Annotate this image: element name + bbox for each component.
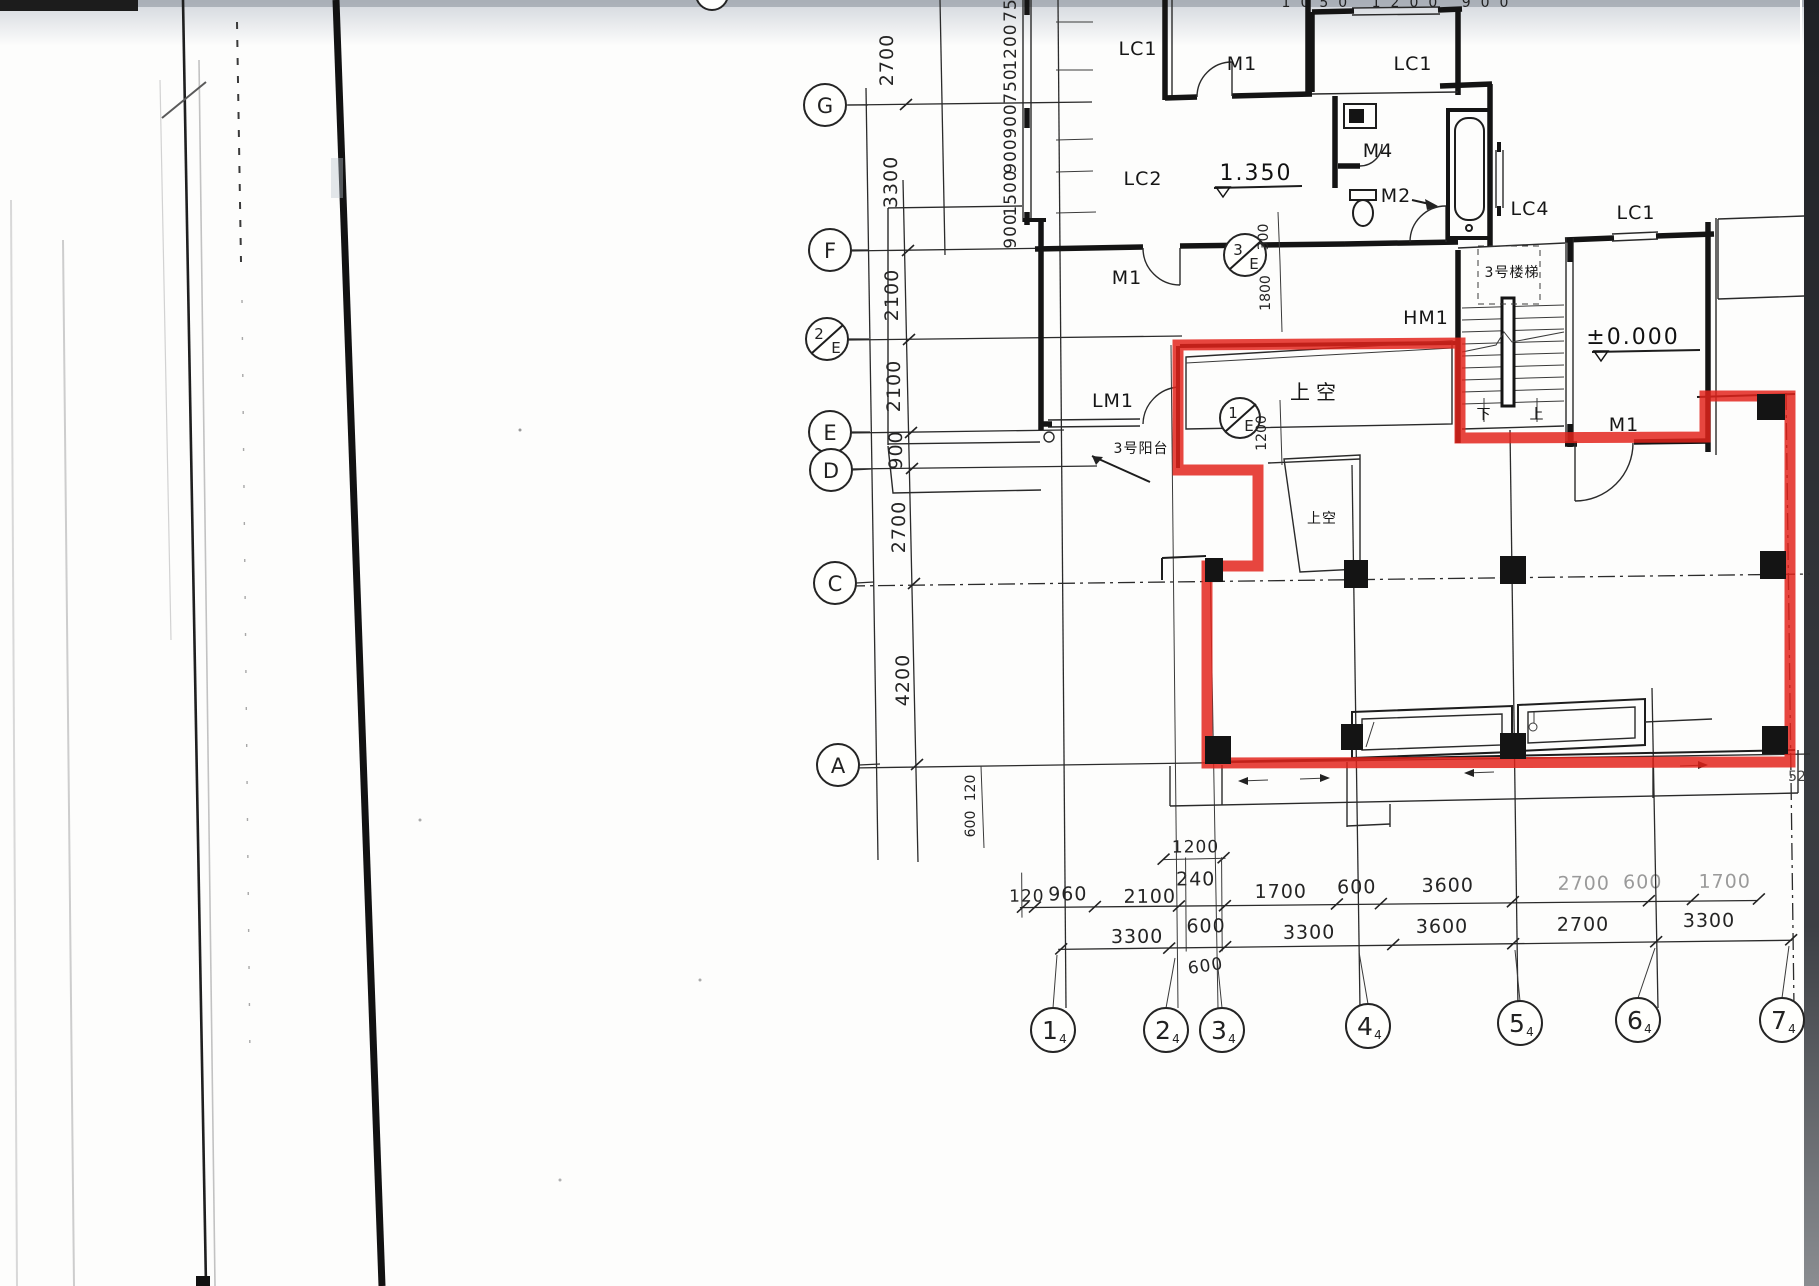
svg-text:A: A — [831, 754, 846, 778]
svg-text:1200: 1200 — [1172, 837, 1219, 857]
axis-bubble-E: E — [809, 411, 870, 453]
svg-text:2100: 2100 — [881, 269, 903, 321]
scanned-floorplan-sheet: G F 2 E E D C — [0, 0, 1819, 1286]
scan-right-band — [1804, 0, 1819, 1286]
svg-text:4: 4 — [1357, 1012, 1373, 1041]
svg-text:120: 120 — [1009, 886, 1045, 906]
svg-text:600: 600 — [1186, 915, 1225, 937]
label-door-m1-top: M1 — [1227, 53, 1257, 75]
axis-bubble-7: 7 4 — [1760, 946, 1804, 1042]
svg-text:2700: 2700 — [1557, 914, 1610, 936]
svg-text:3300: 3300 — [1283, 921, 1336, 943]
stair-rail — [1502, 298, 1514, 406]
svg-text:1200: 1200 — [1001, 23, 1021, 70]
label-balcony-3: 3号阳台 — [1114, 441, 1169, 457]
svg-text:600: 600 — [1623, 871, 1662, 893]
svg-text:2700: 2700 — [1557, 873, 1610, 895]
void-rooms — [1162, 341, 1452, 580]
svg-text:7: 7 — [1771, 1006, 1787, 1035]
svg-text:E: E — [823, 421, 836, 445]
svg-text:1: 1 — [1042, 1016, 1058, 1045]
svg-text:E: E — [831, 339, 840, 357]
right-edge-cut-text: 52 — [1788, 769, 1806, 785]
svg-text:2700: 2700 — [876, 34, 898, 86]
label-door-hm1: HM1 — [1403, 307, 1449, 329]
walls-entry-room — [1565, 218, 1716, 501]
label-stair-up: 上 — [1530, 407, 1545, 423]
left-dimensions: 2700 3300 2100 2100 900 2700 4200 75 120… — [876, 0, 1021, 848]
svg-text:1700: 1700 — [1698, 871, 1751, 893]
label-void-2: 上空 — [1307, 511, 1337, 527]
svg-text:2100: 2100 — [883, 360, 905, 412]
svg-text:3300: 3300 — [1111, 926, 1164, 948]
level-upper: 1.350 — [1214, 161, 1302, 197]
svg-text:3: 3 — [1211, 1016, 1227, 1045]
axis-bubble-D: D — [810, 449, 871, 491]
fold-line-thin — [183, 0, 206, 1286]
columns — [1205, 394, 1788, 764]
axis-bubble-G: G — [804, 84, 868, 126]
svg-text:±0.000: ±0.000 — [1586, 325, 1679, 350]
svg-text:3600: 3600 — [1416, 916, 1469, 938]
label-window-lc1-right: LC1 — [1617, 202, 1656, 224]
svg-text:3600: 3600 — [1422, 874, 1475, 896]
axis-bubble-2: 2 4 — [1144, 958, 1188, 1052]
axis-bubble-2E: 2 E — [806, 318, 869, 360]
svg-text:3300: 3300 — [880, 156, 902, 208]
svg-text:75: 75 — [1001, 0, 1021, 22]
svg-text:1.350: 1.350 — [1220, 161, 1293, 186]
svg-text:2: 2 — [1155, 1016, 1171, 1045]
row-axis-bubbles: G F 2 E E D C — [696, 0, 880, 786]
svg-text:1800: 1800 — [1258, 275, 1274, 311]
svg-text:750: 750 — [1001, 68, 1021, 103]
svg-text:4200: 4200 — [892, 654, 914, 706]
scan-top-left-blob — [0, 0, 138, 11]
svg-text:4: 4 — [1374, 1028, 1382, 1042]
svg-text:900: 900 — [1001, 213, 1021, 248]
axis-bubble-A: A — [817, 744, 880, 786]
svg-text:3: 3 — [1233, 241, 1243, 259]
svg-text:4: 4 — [1644, 1022, 1652, 1036]
svg-text:300: 300 — [1256, 224, 1272, 251]
bottom-dimensions: 1200 240 120 960 2100 1700 600 3600 2700… — [1009, 833, 1798, 980]
svg-text:E: E — [1244, 417, 1253, 435]
grid-lines — [848, 0, 1810, 1008]
axis-bubble-4: 4 4 — [1346, 952, 1390, 1048]
svg-text:4: 4 — [1788, 1022, 1796, 1036]
axis-bubble-5: 5 4 — [1498, 950, 1542, 1045]
svg-text:4: 4 — [1059, 1032, 1067, 1046]
label-window-lc1-top: LC1 — [1119, 38, 1158, 60]
label-window-lc4: LC4 — [1511, 198, 1550, 220]
axis-bubble-F: F — [809, 229, 869, 271]
svg-text:G: G — [817, 94, 833, 118]
svg-text:3300: 3300 — [1683, 910, 1736, 932]
svg-text:1200: 1200 — [1254, 415, 1270, 451]
svg-text:1700: 1700 — [1255, 881, 1308, 903]
label-door-m1-entry: M1 — [1609, 414, 1639, 436]
level-ground: ±0.000 — [1586, 325, 1700, 361]
svg-text:960: 960 — [1048, 883, 1087, 905]
label-window-lc1-topright: LC1 — [1394, 53, 1433, 75]
svg-text:120: 120 — [963, 775, 979, 802]
scan-artifacts — [0, 0, 1819, 1286]
svg-text:900: 900 — [1001, 103, 1021, 138]
axis-bubble-6: 6 4 — [1616, 948, 1660, 1042]
svg-text:F: F — [824, 239, 836, 263]
svg-text:600: 600 — [963, 811, 979, 838]
label-door-m2: M2 — [1381, 185, 1411, 207]
svg-text:5: 5 — [1509, 1009, 1525, 1038]
label-void-1: 上空 — [1290, 380, 1342, 404]
svg-text:4: 4 — [1526, 1025, 1534, 1039]
svg-text:1: 1 — [1228, 404, 1238, 422]
label-door-lm1: LM1 — [1092, 390, 1134, 412]
label-door-m1-mid: M1 — [1112, 267, 1142, 289]
svg-text:D: D — [823, 459, 839, 483]
svg-text:240: 240 — [1176, 868, 1215, 890]
svg-text:4: 4 — [1228, 1032, 1236, 1046]
label-stair-3: 3号楼梯 — [1485, 265, 1540, 281]
svg-text:6: 6 — [1627, 1006, 1643, 1035]
svg-text:2100: 2100 — [1124, 886, 1177, 908]
label-door-m4: M4 — [1363, 140, 1393, 162]
svg-text:C: C — [828, 572, 843, 596]
axis-bubble-C: C — [814, 562, 874, 604]
svg-text:1500: 1500 — [1001, 169, 1021, 216]
svg-text:900: 900 — [1001, 138, 1021, 173]
svg-text:2700: 2700 — [888, 501, 910, 553]
svg-text:E: E — [1249, 255, 1258, 273]
svg-text:4: 4 — [1172, 1032, 1180, 1046]
svg-text:2: 2 — [814, 325, 824, 343]
svg-text:600: 600 — [1337, 876, 1376, 898]
col-axis-bubbles: 1 4 2 4 3 4 4 4 5 4 — [1031, 946, 1804, 1052]
label-window-lc2: LC2 — [1124, 168, 1163, 190]
axis-bubble-1: 1 4 — [1031, 955, 1075, 1052]
label-stair-down: 下 — [1477, 407, 1492, 423]
